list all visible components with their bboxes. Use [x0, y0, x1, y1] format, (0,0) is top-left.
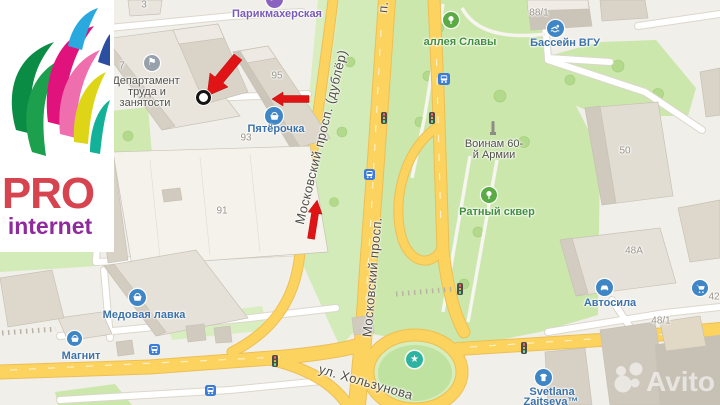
- traffic-light-icon: [457, 283, 463, 295]
- cart-icon: [695, 283, 706, 294]
- traffic-light-icon: [381, 112, 387, 124]
- tree-icon: [484, 190, 494, 201]
- building-number: 50: [619, 146, 630, 157]
- avito-logo-circles: Avito: [615, 363, 715, 398]
- poi-label-magnit: Магнит: [62, 350, 101, 362]
- traffic-light-icon: [521, 342, 527, 354]
- poi-label-medovaya-lavka: Медовая лавка: [103, 309, 186, 321]
- magnit-poi-icon: [67, 331, 82, 346]
- poi-label-pyaterochka: Пятёрочка: [247, 123, 304, 135]
- traffic-light-icon: [429, 112, 435, 124]
- car-icon: [599, 282, 610, 293]
- poi-label-departament-line3: занятости: [120, 97, 171, 109]
- map-screenshot: Московский просп. (дублёр) Московский пр…: [0, 0, 720, 405]
- poi-label-voinam-line2: й Армии: [473, 149, 516, 161]
- pro-internet-logo: PRO internet: [0, 0, 114, 252]
- street-label-moskovsky-top-fragment: п.: [375, 1, 391, 14]
- scissors-icon: ✂: [270, 0, 278, 5]
- building-number: 93: [240, 133, 251, 144]
- alley-park-poi-icon: [443, 12, 459, 28]
- building-number: 3: [141, 0, 147, 11]
- flag-icon: ⚑: [148, 58, 157, 68]
- avito-watermark: Avito: [608, 355, 720, 404]
- traffic-light-icon: [272, 355, 278, 367]
- basket-icon: [269, 111, 280, 122]
- poi-label-alley-slavy: аллея Славы: [424, 36, 497, 48]
- bus-stop-icon: [205, 385, 216, 396]
- medovaya-lavka-poi-icon: [129, 289, 146, 306]
- roundabout-star-icon: ★: [406, 351, 423, 368]
- bus-stop-icon: [149, 344, 160, 355]
- bus-stop-icon: [364, 169, 375, 180]
- clothing-store-poi-icon: [535, 369, 552, 386]
- poi-label-svetlana-line2: Zaitseva™: [523, 396, 578, 405]
- poi-label-bassein-vgu: Бассейн ВГУ: [530, 37, 600, 49]
- building-number: 48/1: [651, 316, 670, 327]
- avito-watermark-text: Avito: [646, 366, 715, 397]
- building-number: 88/1: [529, 8, 548, 19]
- location-marker: [196, 90, 211, 105]
- building-number: 95: [271, 71, 282, 82]
- poi-label-avtosila: Автосила: [584, 297, 636, 309]
- tree-icon: [446, 15, 456, 26]
- shop-cart-poi-icon: [692, 280, 708, 296]
- building-number: 91: [216, 206, 227, 217]
- building-number: 48А: [625, 246, 643, 257]
- basket-icon: [132, 292, 143, 303]
- swimmer-icon: [550, 23, 561, 34]
- bus-stop-icon: [438, 73, 450, 85]
- poi-label-ratny-skver: Ратный сквер: [459, 206, 535, 218]
- t-shirt-icon: [538, 372, 549, 383]
- avtosila-poi-icon: [596, 279, 613, 296]
- building-number: 42: [708, 292, 719, 303]
- basket-icon: [70, 334, 80, 344]
- pool-poi-icon: [547, 20, 564, 37]
- government-poi-icon: ⚑: [144, 55, 160, 71]
- ratny-park-poi-icon: [481, 187, 497, 203]
- logo-title: PRO: [0, 172, 96, 216]
- logo-subtitle: internet: [0, 215, 100, 238]
- building-number: 7: [119, 61, 125, 72]
- poi-label-hairdresser: Парикмахерская: [232, 8, 322, 20]
- logo-emblem: [2, 2, 110, 174]
